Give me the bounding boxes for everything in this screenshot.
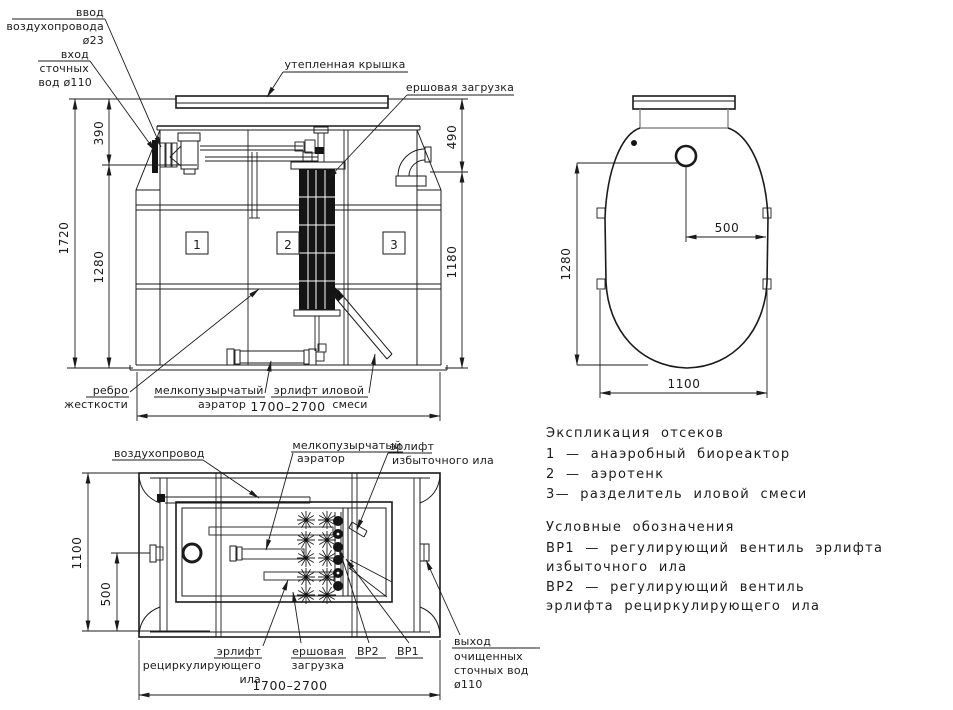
brush-star-icon [297,568,315,586]
recirc-airlift-label: ила [239,673,261,686]
legend-compartment-item: 2 — аэротенк [546,467,664,482]
outlet-stub [420,544,429,561]
compartment-2-number: 2 [284,238,292,252]
outlet-label: сточных вод [454,664,529,677]
dim-1280-front: 1280 [92,251,106,284]
brush-star-icon [318,511,336,529]
oval-shell-outline [605,128,768,368]
inlet-pipe-assembly [152,133,200,174]
brush-star-icon [297,531,315,549]
vent-point [631,140,637,146]
legend: Экспликация отсеков 1 — анаэробный биоре… [546,426,883,614]
dim-1280-section: 1280 [559,248,573,281]
brush-star-icon [297,549,315,567]
sludge-airlift-label: эрлифт иловой [274,384,364,397]
lid [176,96,388,108]
outlet-label: ø110 [454,678,483,691]
rib-label: жесткости [64,398,128,411]
dim-width-front: 1700–2700 [250,399,325,414]
brush-star-icon [318,568,336,586]
plan-view: 1100 500 1700–2700 воздухопровод мелкопу… [70,439,540,700]
brush-label-plan: ершовая [292,645,344,658]
front-labels: ввод воздухопровода ø23 вход сточных вод… [6,6,514,411]
aerator-label-front: мелкопузырчатый [154,384,263,397]
outlet-label: выход [454,635,491,648]
recirc-airlift-label: эрлифт [217,645,262,658]
aerator-label-plan: мелкопузырчатый [292,439,401,452]
air-pipe-label: воздухопровод [114,447,205,460]
legend-symbol-item: ВР1 — регулирующий вентиль эрлифта [546,541,883,556]
dim-390: 390 [92,121,106,146]
air-inlet-label: ø23 [83,34,104,47]
sludge-airlift-pipe [331,288,392,359]
inlet-stub [150,545,163,562]
dim-width-plan: 1700–2700 [252,678,327,693]
air-inlet-label: ввод [76,6,104,19]
dim-500-section: 500 [715,221,740,235]
front-dimensions: 1720 390 1280 490 1180 1700–2700 [57,99,468,421]
legend-symbol-item: ВР2 — регулирующий вентиль [546,580,805,595]
rib-label: ребро [93,384,128,397]
sewage-inlet-label: сточных [40,62,90,75]
dim-1100-plan: 1100 [70,537,84,570]
legend-compartments-title: Экспликация отсеков [546,426,724,441]
aerator-label-front: аэратор [198,398,246,411]
legend-compartment-item: 1 — анаэробный биореактор [546,447,790,462]
hatch-opening [176,502,392,602]
section-view: 1280 500 1100 [559,96,771,398]
sewage-inlet-label: вход [61,48,89,61]
fine-bubble-aerator [227,344,326,365]
section-dimensions: 1280 500 1100 [559,163,767,398]
legend-compartment-item: 3— разделитель иловой смеси [546,487,808,502]
dim-1180: 1180 [445,246,459,279]
brush-label-plan: загрузка [292,659,345,672]
brush-media-label: ершовая загрузка [406,81,514,94]
insulated-lid-label: утепленная крышка [284,58,405,71]
recirc-airlift-label: рециркулирующего [143,659,261,672]
outlet-label: очищенных [454,650,523,663]
brush-media-column [291,162,345,351]
cad-drawing-canvas: 1 2 3 1720 390 1280 490 1180 1700–2700 [0,0,953,710]
aerator-label-plan: аэратор [297,452,345,465]
compartment-markers: 1 2 3 [186,232,405,254]
neck-flange [633,96,735,128]
dim-1720: 1720 [57,222,71,255]
compartment-3-number: 3 [390,238,398,252]
legend-symbol-item: избыточного ила [546,560,687,575]
brush-star-icon [318,549,336,567]
valve-vr2-label: ВР2 [357,645,379,658]
air-inlet-label: воздухопровода [6,20,104,33]
legend-symbols-title: Условные обозначения [546,520,735,535]
legend-symbol-item: эрлифта рециркулирующего ила [546,599,820,614]
dim-490: 490 [445,125,459,150]
excess-airlift-label: избыточного ила [392,454,494,467]
dim-1100-section: 1100 [668,377,701,391]
compartment-1-number: 1 [193,238,201,252]
cad-drawing: 1 2 3 1720 390 1280 490 1180 1700–2700 [0,0,953,710]
valve-vr1-label: ВР1 [397,645,419,658]
excess-airlift-label: эрлифт [390,440,435,453]
sewage-inlet-label: вод ø110 [38,76,92,89]
side-tabs [597,208,771,289]
sludge-airlift-label: смеси [332,398,367,411]
dim-500-plan: 500 [99,582,113,607]
brush-star-icon [297,511,315,529]
front-view: 1 2 3 1720 390 1280 490 1180 1700–2700 [6,6,514,421]
